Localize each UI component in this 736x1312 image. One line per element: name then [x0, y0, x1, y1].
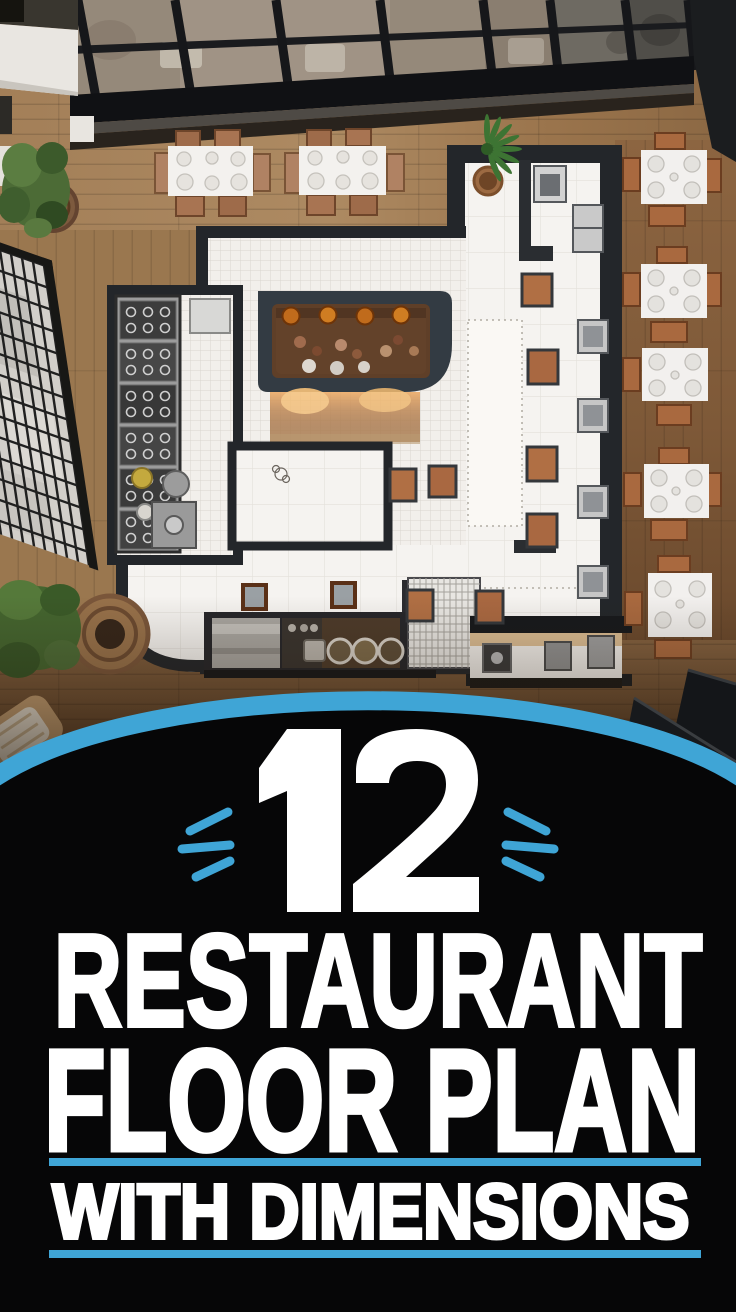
svg-text:WITH DIMENSIONS: WITH DIMENSIONS: [53, 1169, 690, 1255]
svg-text:FLOOR PLAN: FLOOR PLAN: [44, 1020, 700, 1181]
